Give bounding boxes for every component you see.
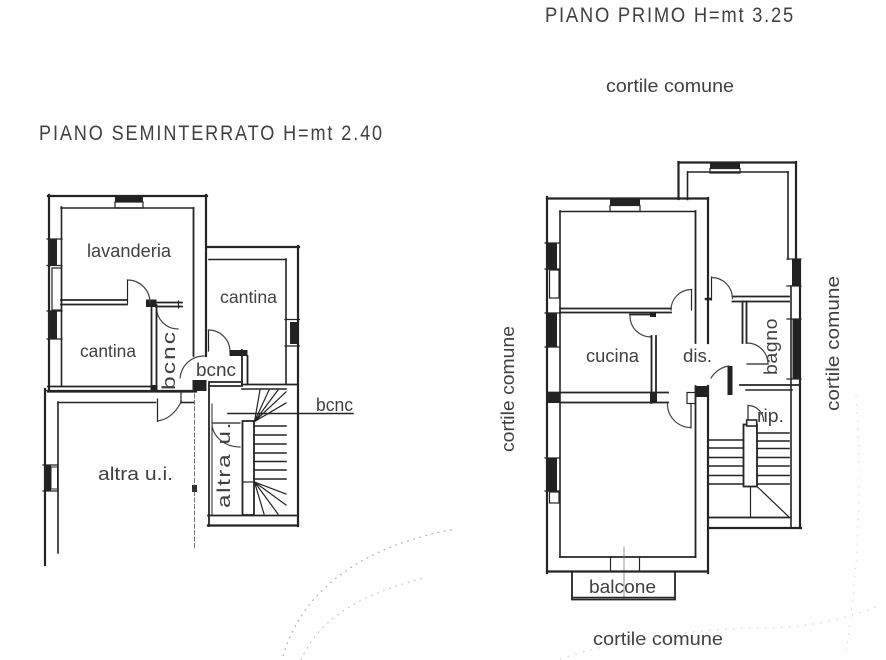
svg-text:bcnc: bcnc [316,395,353,415]
svg-text:cantina: cantina [80,341,136,361]
svg-text:lavanderia: lavanderia [87,241,172,261]
svg-text:cortile comune: cortile comune [606,76,734,96]
svg-text:altra u.i.: altra u.i. [98,464,173,484]
svg-text:cucina: cucina [586,346,640,366]
svg-text:bcnc: bcnc [196,360,236,380]
svg-text:cortile comune: cortile comune [823,276,843,411]
svg-text:PIANO SEMINTERRATO H=mt 2.4: PIANO SEMINTERRATO H=mt 2.40 [39,122,384,145]
svg-text:rip.: rip. [757,406,784,426]
svg-text:bagno: bagno [761,318,781,375]
svg-text:altra u.: altra u. [214,421,234,508]
svg-text:dis.: dis. [683,346,712,366]
svg-text:bcnc: bcnc [158,330,179,390]
svg-text:PIANO PRIMO H=mt 3.25: PIANO PRIMO H=mt 3.25 [545,4,795,27]
svg-text:cortile comune: cortile comune [593,629,723,649]
svg-text:cortile comune: cortile comune [498,326,518,452]
svg-text:cantina: cantina [220,287,277,307]
svg-text:balcone: balcone [589,576,656,597]
